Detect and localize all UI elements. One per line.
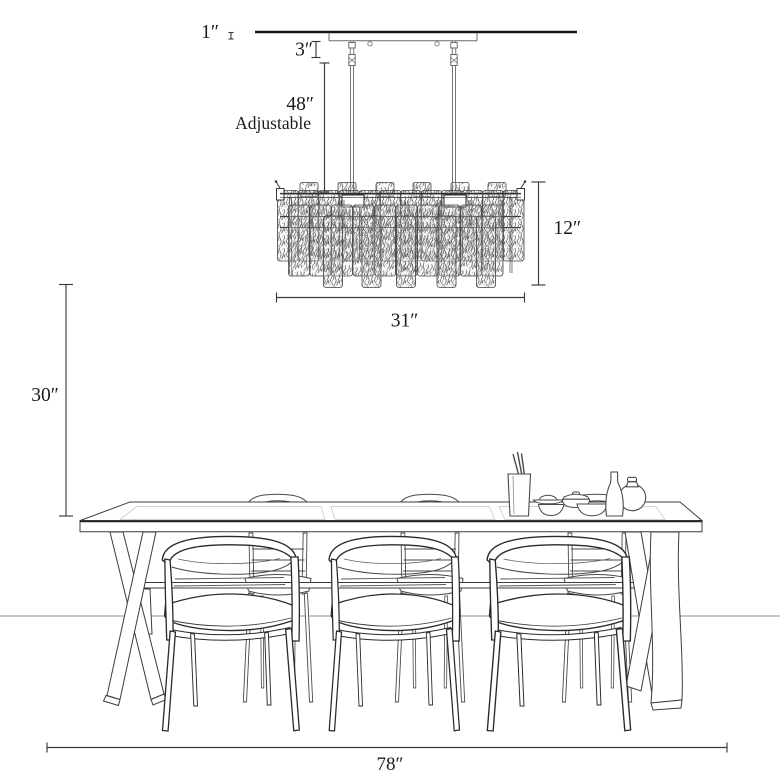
svg-text:Adjustable: Adjustable	[235, 113, 311, 133]
svg-text:1″: 1″	[201, 22, 219, 43]
svg-text:31″: 31″	[391, 311, 419, 332]
svg-text:3″: 3″	[295, 40, 313, 61]
svg-text:78″: 78″	[377, 754, 404, 775]
svg-text:12″: 12″	[554, 218, 582, 239]
svg-text:30″: 30″	[31, 385, 59, 406]
svg-text:48″: 48″	[286, 94, 314, 115]
